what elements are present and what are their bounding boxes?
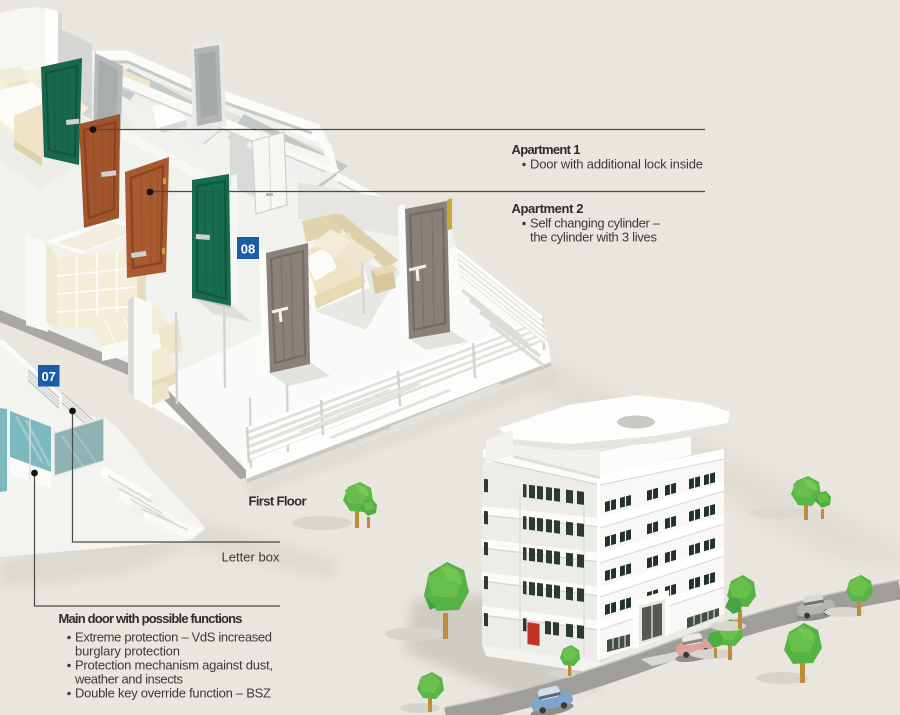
svg-text:the cylinder with 3 lives: the cylinder with 3 lives	[530, 230, 658, 245]
svg-text:Main door with possible functi: Main door with possible functions	[59, 611, 243, 626]
svg-text:Extreme protection – VdS incre: Extreme protection – VdS increased	[75, 630, 272, 645]
svg-text:Letter box: Letter box	[222, 550, 281, 565]
svg-text:Self changing cylinder –: Self changing cylinder –	[530, 216, 661, 231]
svg-text:First Floor: First Floor	[249, 494, 307, 509]
svg-text:burglary protection: burglary protection	[75, 644, 180, 659]
svg-text:07: 07	[41, 369, 55, 384]
svg-text:Protection mechanism against d: Protection mechanism against dust,	[75, 658, 273, 673]
svg-text:weather and insects: weather and insects	[74, 672, 184, 687]
svg-text:08: 08	[241, 242, 255, 257]
svg-text:Apartment 1: Apartment 1	[512, 142, 581, 157]
svg-text:Apartment 2: Apartment 2	[512, 201, 584, 216]
svg-text:Double key override function –: Double key override function – BSZ	[75, 686, 271, 701]
svg-text:Door with additional lock insi: Door with additional lock inside	[530, 157, 703, 172]
